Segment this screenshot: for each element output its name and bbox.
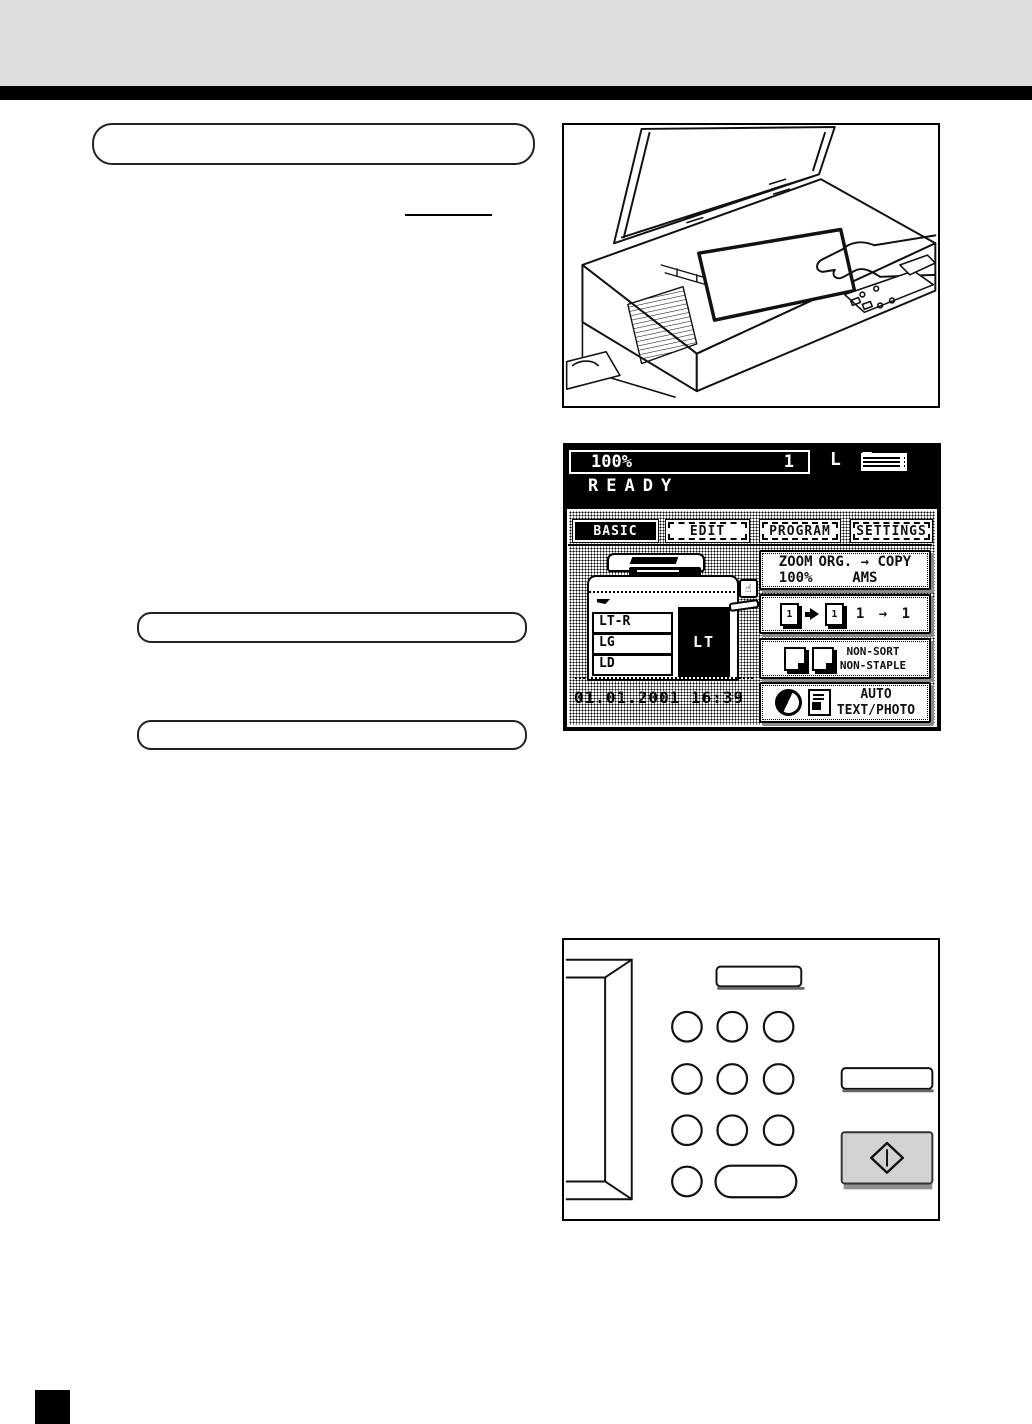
status-message: READY	[588, 476, 679, 496]
image-mode-line2: TEXT/PHOTO	[837, 703, 915, 718]
drawer-ld: LD	[592, 654, 673, 676]
selected-paper-source: LT	[678, 607, 730, 677]
zoom-orig-copy-button: ZOOM 100% ORG. → COPY AMS	[759, 550, 931, 590]
ground-line	[575, 677, 753, 679]
header-band	[0, 0, 1032, 86]
simplex-duplex-button: 1 1 1 → 1	[759, 594, 931, 634]
zoom-value: 100%	[779, 570, 813, 586]
text-photo-icon	[808, 689, 831, 716]
zoom-ratio-value: 100%	[571, 452, 632, 472]
finisher-label: NON-SORT NON-STAPLE	[840, 645, 906, 671]
tab-edit-label: EDIT	[668, 522, 747, 540]
machine-body-line	[589, 591, 735, 593]
copier-line-art	[564, 125, 938, 402]
underline-mark	[405, 214, 492, 216]
finisher-mode-button: NON-SORT NON-STAPLE	[759, 638, 931, 679]
simplex-duplex-label: 1 → 1	[856, 606, 910, 622]
keypad-line-art	[564, 940, 938, 1215]
step-heading-box-1	[137, 612, 527, 643]
finisher-line2: NON-STAPLE	[840, 659, 906, 672]
tab-settings-label: SETTINGS	[853, 522, 930, 540]
image-mode-label: AUTO TEXT/PHOTO	[837, 687, 915, 718]
tab-basic: BASIC	[572, 519, 659, 543]
page-number-tab	[35, 1390, 70, 1424]
image-mode-button: AUTO TEXT/PHOTO	[759, 682, 931, 723]
image-mode-line1: AUTO	[860, 687, 891, 702]
machine-status-graphic: LT-R LG LD LT ☝	[583, 553, 761, 693]
hand-icon: ☝	[739, 579, 758, 598]
section-title-box	[92, 123, 535, 165]
tab-settings: SETTINGS	[850, 519, 933, 543]
tab-basic-label: BASIC	[575, 522, 656, 540]
group-stack-icon	[812, 647, 834, 671]
original-page-icon: 1	[780, 603, 799, 626]
toner-gauge-icon	[861, 453, 907, 471]
header-rule	[0, 86, 1032, 100]
lcd-touchscreen: 100% 1 L T READY BASIC EDIT PROGRAM SETT…	[563, 443, 941, 731]
tab-program-label: PROGRAM	[762, 522, 838, 540]
tab-edit: EDIT	[665, 519, 750, 543]
finisher-line1: NON-SORT	[847, 645, 900, 658]
copy-page-icon: 1	[825, 603, 844, 626]
zoom-group: ZOOM 100%	[779, 554, 813, 586]
panel-bevel-frame	[567, 960, 632, 1200]
copy-count-value: 1	[784, 452, 808, 472]
status-bar: 100% 1	[569, 450, 810, 474]
manual-page: 100% 1 L T READY BASIC EDIT PROGRAM SETT…	[0, 0, 1032, 1424]
drawer-lt-r: LT-R	[592, 612, 673, 634]
drawer-lg: LG	[592, 633, 673, 655]
orig-copy-group: ORG. → COPY AMS	[819, 554, 912, 586]
copier-illustration	[562, 123, 940, 408]
keypad-illustration	[562, 938, 940, 1221]
zoom-label: ZOOM	[779, 554, 813, 570]
contrast-icon	[775, 689, 802, 716]
tab-row-underline	[568, 544, 932, 546]
solid-arrow-head-icon	[810, 608, 819, 620]
step-heading-box-2	[137, 720, 527, 750]
sort-stack-icon	[784, 647, 806, 671]
datetime-display: 01.01.2001 16:39	[574, 688, 744, 707]
orig-copy-label: ORG. → COPY	[819, 554, 912, 570]
tab-program: PROGRAM	[759, 519, 841, 543]
orig-copy-value: AMS	[852, 570, 877, 586]
